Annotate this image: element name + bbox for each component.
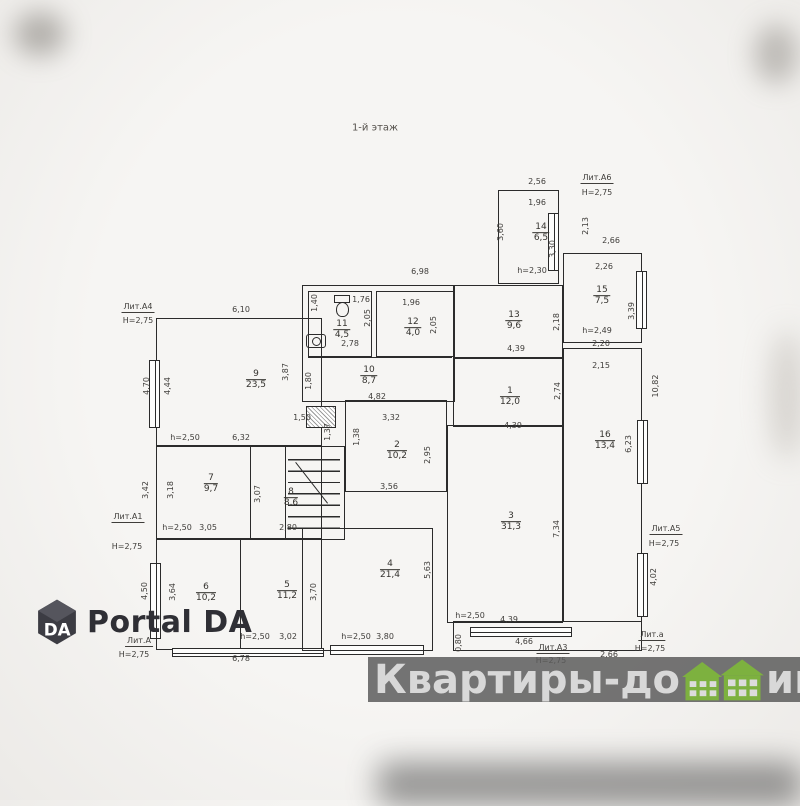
dimension-label: 2,66	[602, 237, 620, 245]
dimension-label: 1,37	[324, 423, 332, 441]
room-label-2: 210,2	[387, 440, 407, 462]
dimension-label: Лит.А6	[581, 174, 614, 184]
dimension-label: Лит.а	[638, 631, 665, 641]
dimension-label: 4,70	[143, 377, 151, 395]
wall-room16	[563, 348, 642, 622]
dimension-label: 6,98	[411, 268, 429, 276]
dimension-label: 3,18	[167, 481, 175, 499]
dimension-label: H=2,75	[635, 645, 666, 653]
dimension-label: 4,66	[515, 638, 533, 646]
dimension-label: 2,20	[592, 340, 610, 348]
dimension-label: 2,18	[553, 313, 561, 331]
dimension-label: 2,15	[592, 362, 610, 370]
dimension-label: 6,78	[232, 655, 250, 663]
dimension-label: 3,80	[376, 633, 394, 641]
dimension-label: Лит.А5	[650, 525, 683, 535]
dimension-label: 6,23	[625, 435, 633, 453]
dimension-label: h=2,50	[341, 633, 371, 641]
room-label-1: 112,0	[500, 386, 520, 408]
scanned-floor-plan-page: 1-й этаж	[0, 0, 800, 800]
dimension-label: 3,07	[254, 485, 262, 503]
room-label-3: 331,3	[501, 511, 521, 533]
dimension-label: 0,80	[455, 634, 463, 652]
room-label-5: 511,2	[277, 580, 297, 602]
dimension-label: 3,70	[310, 583, 318, 601]
dimension-label: 2,78	[341, 340, 359, 348]
dimension-label: 2,05	[364, 309, 372, 327]
dimension-label: 5,63	[424, 561, 432, 579]
room-label-12: 124,0	[404, 317, 421, 339]
dimension-label: 6,32	[232, 434, 250, 442]
dimension-label: h=2,30	[517, 267, 547, 275]
dimension-label: H=2,75	[649, 540, 680, 548]
dimension-label: 3,02	[279, 633, 297, 641]
dimension-label: Лит.А1	[112, 513, 145, 523]
dimension-label: H=2,75	[123, 317, 154, 325]
dimension-label: Лит.А4	[122, 303, 155, 313]
room-label-7: 79,7	[204, 473, 218, 495]
dimension-label: 4,02	[650, 568, 658, 586]
dimension-label: 3,56	[380, 483, 398, 491]
dimension-label: H=2,75	[112, 543, 143, 551]
dimension-label: H=2,75	[582, 189, 613, 197]
room-label-10: 108,7	[360, 365, 377, 387]
dimension-label: 2,74	[554, 382, 562, 400]
dimension-label: h=2,50	[170, 434, 200, 442]
dimension-label: 4,39	[500, 616, 518, 624]
room-label-9: 923,5	[246, 369, 266, 391]
dimension-label: 2,13	[582, 217, 590, 235]
portal-da-logo: DA Portal DA	[36, 598, 252, 646]
dimension-label: h=2,49	[582, 327, 612, 335]
dimension-label: 7,34	[553, 520, 561, 538]
dimension-label: 2,80	[279, 524, 297, 532]
room-label-15: 157,5	[593, 285, 610, 307]
dimension-label: 3,30	[549, 240, 557, 258]
toilet-bowl-icon	[336, 302, 349, 317]
dimension-label: 1,40	[311, 294, 319, 312]
room-label-14: 146,5	[532, 222, 549, 244]
dimension-label: 3,87	[282, 363, 290, 381]
wall-room10-top	[308, 357, 452, 358]
dimension-label: h=2,50	[162, 524, 192, 532]
dimension-label: 1,96	[528, 199, 546, 207]
dimension-label: 2,05	[430, 316, 438, 334]
dimension-label: 6,10	[232, 306, 250, 314]
dimension-label: Лит.А3	[537, 644, 570, 654]
watermark-text-right: ики.рф	[766, 657, 800, 702]
dimension-label: 3,60	[497, 223, 505, 241]
dimension-label: 3,32	[382, 414, 400, 422]
dimension-label: h=2,50	[455, 612, 485, 620]
room-label-8: 88,6	[284, 487, 298, 509]
plan-title: 1-й этаж	[352, 123, 398, 134]
dimension-label: 1,38	[353, 428, 361, 446]
dimension-label: 10,82	[652, 375, 660, 398]
logo-text: Portal DA	[87, 605, 252, 640]
dimension-label: 4,44	[164, 377, 172, 395]
window-room16-right-lower	[637, 553, 648, 617]
green-houses-icon	[681, 657, 765, 702]
window-room15-right	[636, 271, 647, 329]
dimension-label: 1,96	[402, 299, 420, 307]
svg-text:DA: DA	[44, 619, 71, 639]
window-corridor-bottom	[470, 627, 572, 637]
dimension-label: 1,80	[305, 372, 313, 390]
watermark-banner: Квартиры-до ики.рф	[368, 657, 800, 702]
dimension-label: 4,82	[368, 393, 386, 401]
dimension-label: 1,50	[293, 414, 311, 422]
dimension-label: 3,39	[628, 302, 636, 320]
dimension-label: 1,76	[352, 296, 370, 304]
dimension-label: 4,39	[507, 345, 525, 353]
watermark-text-left: Квартиры-до	[374, 657, 680, 702]
wall-divider-7-8	[250, 445, 251, 538]
window-room16-right-upper	[637, 420, 648, 484]
window-room4-bottom	[330, 645, 424, 655]
dimension-label: 2,95	[424, 446, 432, 464]
dimension-label: 3,42	[142, 481, 150, 499]
cube-logo-icon: DA	[36, 598, 78, 646]
room-label-11: 114,5	[333, 319, 350, 341]
wall-room9	[156, 318, 322, 447]
dimension-label: 4,39	[504, 422, 522, 430]
room-label-4: 421,4	[380, 559, 400, 581]
dimension-label: H=2,75	[119, 651, 150, 659]
dimension-label: 3,05	[199, 524, 217, 532]
dimension-label: 2,26	[595, 263, 613, 271]
room-label-16: 1613,4	[595, 430, 615, 452]
room-label-13: 139,6	[505, 310, 522, 332]
sink-icon	[306, 334, 326, 348]
dimension-label: 2,56	[528, 178, 546, 186]
